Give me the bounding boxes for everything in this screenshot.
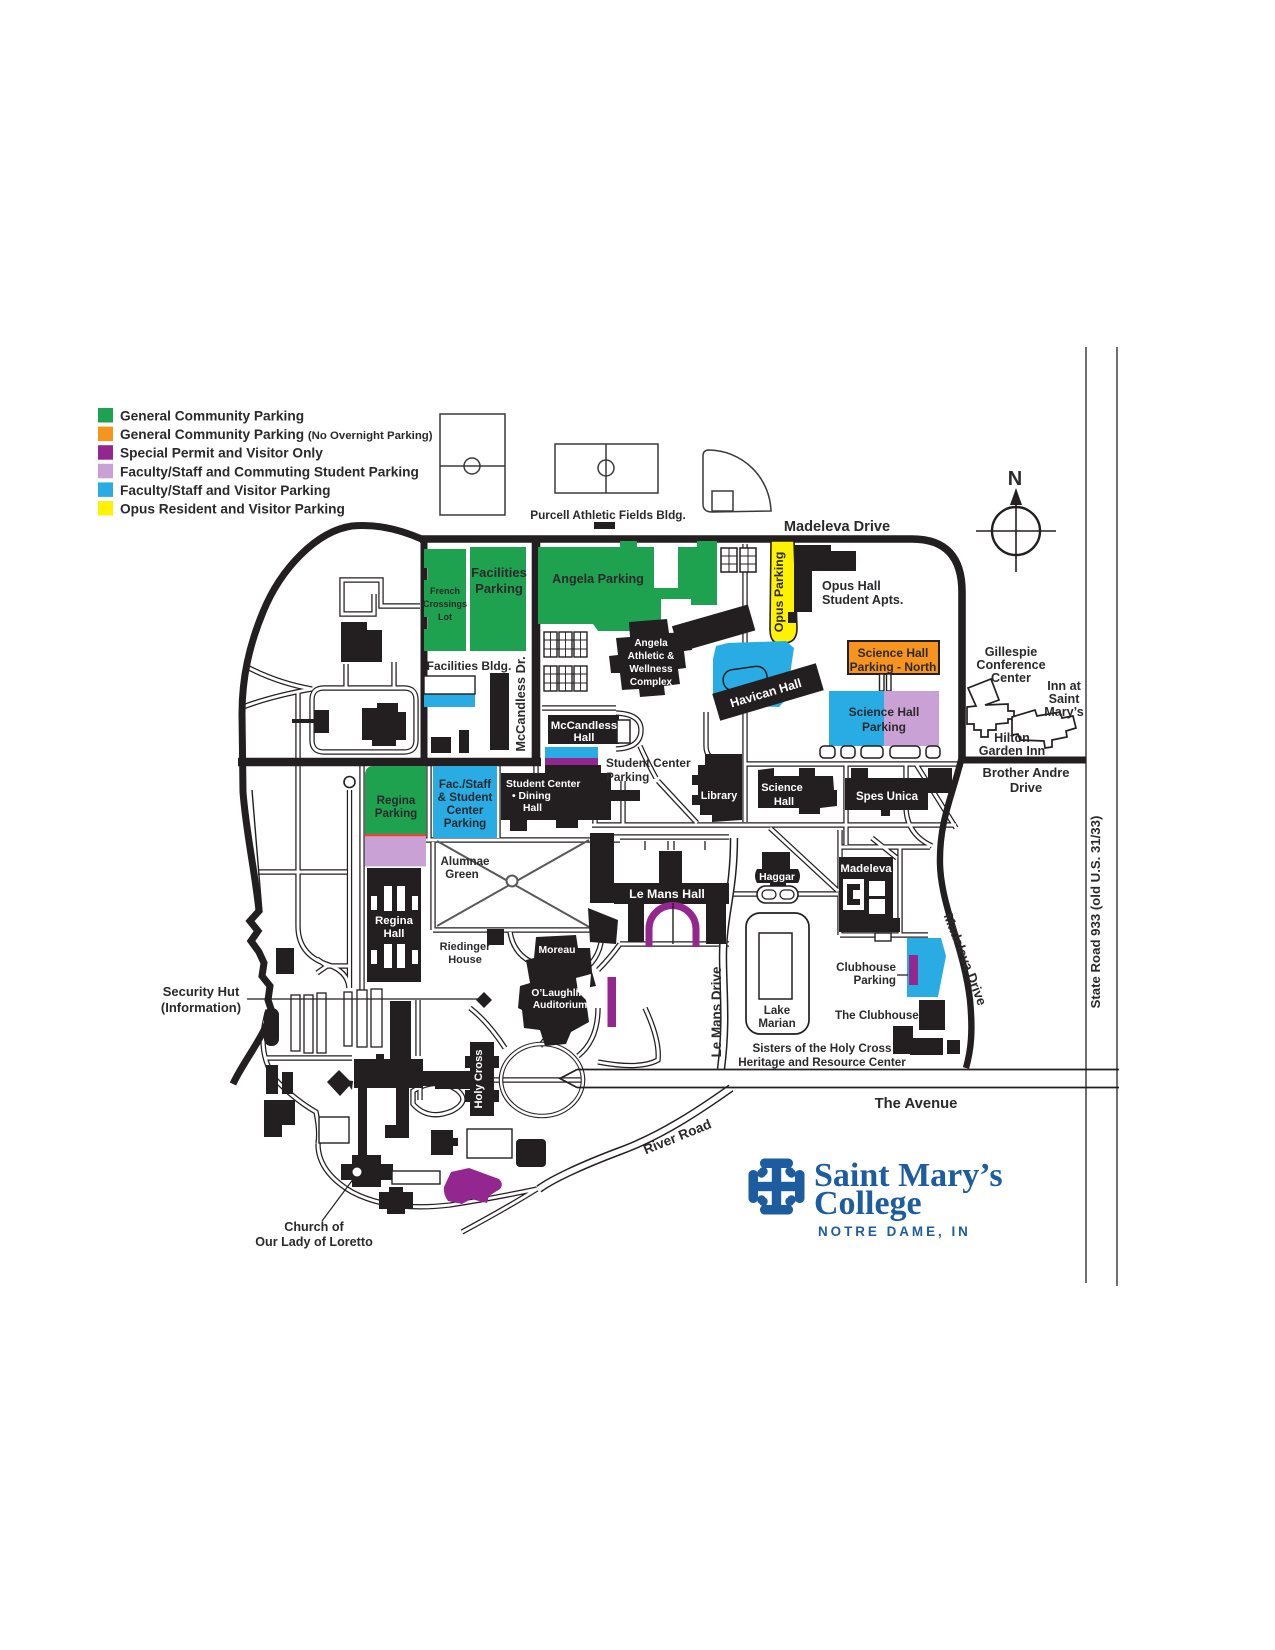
svg-text:Parking: Parking — [853, 974, 896, 987]
svg-text:Saint: Saint — [1049, 692, 1081, 706]
svg-text:Parking: Parking — [375, 807, 418, 820]
svg-text:College: College — [814, 1185, 922, 1222]
svg-text:Regina: Regina — [375, 915, 414, 927]
svg-text:Le Mans Hall: Le Mans Hall — [629, 887, 705, 901]
svg-text:Fac./Staff: Fac./Staff — [439, 778, 491, 791]
svg-text:Hall: Hall — [574, 732, 595, 744]
svg-text:Security Hut: Security Hut — [163, 984, 240, 999]
svg-text:NOTRE DAME, IN: NOTRE DAME, IN — [818, 1224, 971, 1239]
svg-text:Parking: Parking — [444, 817, 487, 830]
svg-text:Sisters of the Holy Cross: Sisters of the Holy Cross — [753, 1042, 892, 1055]
svg-text:Faculty/Staff and Commuting St: Faculty/Staff and Commuting Student Park… — [120, 464, 419, 479]
svg-text:The Clubhouse: The Clubhouse — [835, 1009, 919, 1022]
svg-text:Science Hall: Science Hall — [858, 646, 929, 660]
svg-text:Faculty/Staff and Visitor Park: Faculty/Staff and Visitor Parking — [120, 483, 330, 498]
svg-text:Holy Cross: Holy Cross — [473, 1049, 485, 1108]
svg-text:State Road 933 (old U.S. 31/33: State Road 933 (old U.S. 31/33) — [1088, 816, 1103, 1009]
svg-text:Center: Center — [991, 671, 1031, 685]
svg-text:Parking - North: Parking - North — [850, 660, 937, 674]
svg-text:Garden Inn: Garden Inn — [979, 744, 1045, 758]
svg-text:Opus Hall: Opus Hall — [822, 579, 881, 593]
svg-text:Opus Resident and Visitor Park: Opus Resident and Visitor Parking — [120, 502, 345, 517]
svg-text:Science Hall: Science Hall — [849, 705, 920, 719]
svg-text:Hall: Hall — [523, 803, 542, 814]
svg-text:Science: Science — [761, 782, 803, 794]
svg-text:Conference: Conference — [976, 658, 1045, 672]
svg-text:Angela: Angela — [634, 638, 668, 649]
svg-text:General Community Parking (No: General Community Parking (No Overnight … — [120, 427, 433, 442]
svg-text:Center: Center — [447, 804, 484, 817]
svg-text:O’Laughlin: O’Laughlin — [531, 988, 584, 999]
svg-text:Marian: Marian — [758, 1017, 795, 1030]
svg-text:House: House — [448, 954, 482, 966]
svg-text:Regina: Regina — [377, 794, 416, 807]
svg-text:Green: Green — [445, 868, 479, 881]
svg-text:General Community Parking: General Community Parking — [120, 409, 304, 424]
svg-text:Lot: Lot — [438, 612, 452, 622]
svg-text:Haggar: Haggar — [759, 872, 795, 883]
svg-text:Riedinger: Riedinger — [440, 941, 491, 953]
svg-text:Heritage and Resource Center: Heritage and Resource Center — [738, 1056, 906, 1069]
svg-text:Hilton: Hilton — [994, 731, 1030, 745]
svg-text:Madeleva: Madeleva — [840, 863, 892, 875]
svg-text:Special Permit and Visitor Onl: Special Permit and Visitor Only — [120, 446, 323, 461]
svg-text:Hall: Hall — [774, 796, 794, 808]
svg-text:The Avenue: The Avenue — [875, 1096, 958, 1112]
svg-text:Opus Parking: Opus Parking — [772, 552, 786, 633]
svg-text:Facilities Bldg.: Facilities Bldg. — [427, 659, 512, 673]
svg-text:Inn at: Inn at — [1047, 679, 1081, 693]
svg-text:Athletic &: Athletic & — [628, 651, 675, 662]
svg-text:Brother Andre: Brother Andre — [983, 765, 1070, 780]
svg-text:Purcell Athletic Fields Bldg.: Purcell Athletic Fields Bldg. — [530, 508, 686, 522]
svg-text:Spes Unica: Spes Unica — [856, 791, 919, 803]
svg-text:Parking: Parking — [606, 770, 649, 784]
svg-text:Crossings: Crossings — [423, 599, 467, 609]
svg-text:Student Apts.: Student Apts. — [822, 593, 903, 607]
svg-text:(Information): (Information) — [161, 1000, 241, 1015]
svg-text:Our Lady of Loretto: Our Lady of Loretto — [255, 1235, 373, 1249]
svg-text:Facilities: Facilities — [471, 565, 527, 580]
svg-text:Moreau: Moreau — [539, 945, 576, 956]
svg-text:Drive: Drive — [1010, 780, 1042, 795]
svg-text:Gillespie: Gillespie — [985, 645, 1038, 659]
svg-text:Complex: Complex — [630, 677, 673, 688]
svg-text:Le Mans Drive: Le Mans Drive — [709, 967, 724, 1058]
svg-text:Student Center: Student Center — [506, 779, 580, 790]
svg-text:Church of: Church of — [284, 1220, 344, 1234]
svg-text:Madeleva Drive: Madeleva Drive — [784, 519, 890, 535]
svg-text:• Dining: • Dining — [512, 791, 551, 802]
svg-text:Clubhouse: Clubhouse — [836, 961, 896, 974]
svg-text:Angela Parking: Angela Parking — [552, 572, 644, 586]
svg-text:Parking: Parking — [862, 720, 906, 734]
svg-text:& Student: & Student — [438, 791, 493, 804]
svg-text:McCandless: McCandless — [551, 720, 617, 732]
svg-text:Mary’s: Mary’s — [1044, 705, 1083, 719]
svg-text:Lake: Lake — [764, 1004, 791, 1017]
svg-text:French: French — [430, 586, 460, 596]
svg-text:Student Center: Student Center — [606, 756, 691, 770]
svg-text:Library: Library — [701, 790, 738, 802]
svg-text:Wellness: Wellness — [629, 664, 673, 675]
svg-text:Auditorium: Auditorium — [533, 1000, 587, 1011]
svg-text:Alumnae: Alumnae — [441, 855, 491, 868]
svg-text:McCandless Dr.: McCandless Dr. — [513, 656, 528, 751]
svg-text:Hall: Hall — [384, 928, 405, 940]
svg-text:N: N — [1008, 468, 1022, 490]
svg-text:Parking: Parking — [475, 581, 523, 596]
